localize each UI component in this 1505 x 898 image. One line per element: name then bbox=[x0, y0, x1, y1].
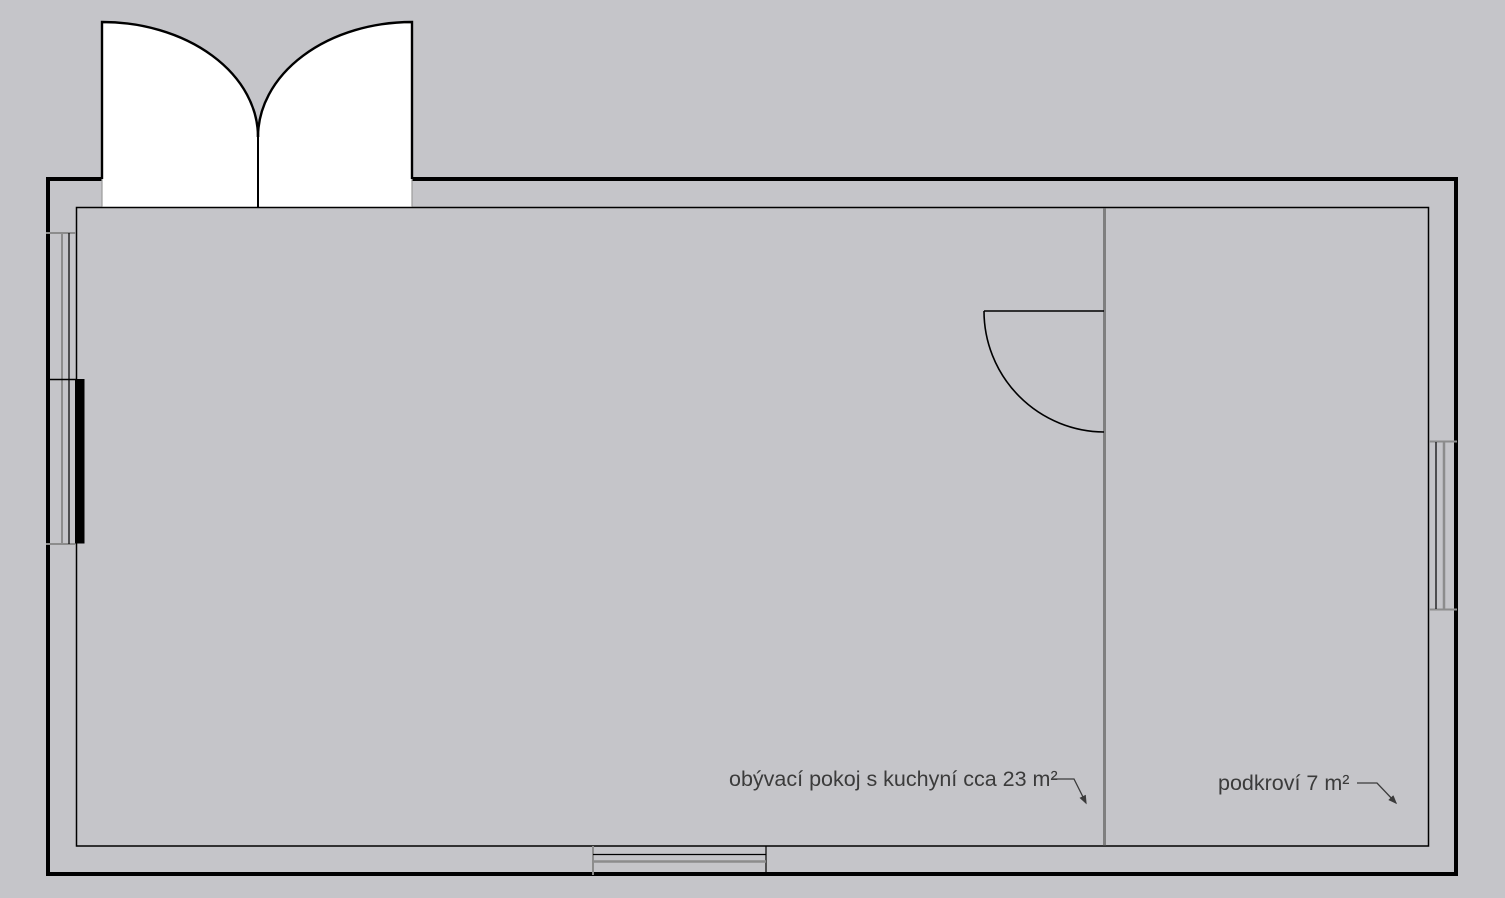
label-living-room-text: obývací pokoj s kuchyní cca 23 m² bbox=[729, 767, 1058, 791]
floor-plan-drawing: obývací pokoj s kuchyní cca 23 m² podkro… bbox=[0, 0, 1505, 898]
window-left-dark-sash-bar bbox=[75, 379, 85, 544]
floor-plan: obývací pokoj s kuchyní cca 23 m² podkro… bbox=[0, 0, 1505, 898]
label-attic-text: podkroví 7 m² bbox=[1218, 771, 1349, 795]
